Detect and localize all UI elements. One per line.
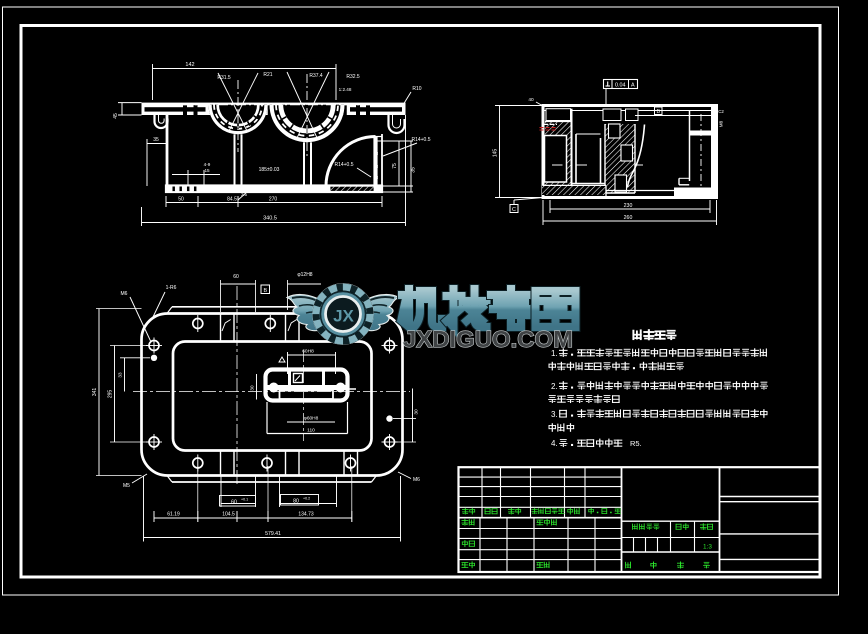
svg-text:JXDIGUO.COM: JXDIGUO.COM <box>403 326 573 352</box>
svg-text:50: 50 <box>178 197 184 203</box>
svg-text:341: 341 <box>92 388 98 397</box>
svg-text:33: 33 <box>118 372 123 378</box>
svg-text:M6: M6 <box>121 291 128 297</box>
svg-text:60: 60 <box>233 274 239 280</box>
svg-text:45: 45 <box>113 113 119 119</box>
svg-text:0.04: 0.04 <box>615 83 626 89</box>
svg-text:B: B <box>263 288 267 294</box>
svg-text:35: 35 <box>411 167 417 173</box>
svg-text:185±0.03: 185±0.03 <box>259 167 280 173</box>
svg-text:M8: M8 <box>719 120 724 127</box>
svg-text:R32.5: R32.5 <box>346 74 360 80</box>
svg-text:110: 110 <box>307 428 315 434</box>
svg-text:4.: 4. <box>551 439 558 448</box>
svg-text:260: 260 <box>624 215 633 221</box>
svg-text:JX: JX <box>333 307 354 326</box>
svg-text:104.5: 104.5 <box>222 512 235 518</box>
svg-text:579.41: 579.41 <box>265 531 281 537</box>
svg-text:295: 295 <box>108 390 114 399</box>
svg-text:270: 270 <box>269 197 278 203</box>
svg-text:+0.2: +0.2 <box>303 497 310 501</box>
svg-text:84.5: 84.5 <box>227 197 237 203</box>
svg-text:R14+0.5: R14+0.5 <box>411 137 430 143</box>
svg-text:60: 60 <box>231 500 237 506</box>
svg-text:R10: R10 <box>412 86 421 92</box>
svg-text:75: 75 <box>392 163 398 169</box>
svg-text:1:2.48: 1:2.48 <box>339 87 352 92</box>
svg-text:M5: M5 <box>123 483 130 489</box>
svg-text:142: 142 <box>185 62 194 68</box>
svg-text:15: 15 <box>204 168 210 173</box>
svg-text:1:3: 1:3 <box>703 544 712 551</box>
svg-text:C: C <box>512 207 516 213</box>
svg-text:145: 145 <box>493 149 499 158</box>
svg-text:340.5: 340.5 <box>263 216 277 222</box>
svg-text:134.73: 134.73 <box>298 512 314 518</box>
svg-text:1.: 1. <box>551 349 558 358</box>
svg-text:30: 30 <box>250 385 255 391</box>
svg-text:40: 40 <box>528 97 534 103</box>
svg-text:61.19: 61.19 <box>167 512 180 518</box>
svg-text:80: 80 <box>293 499 299 505</box>
svg-text:A: A <box>631 83 635 89</box>
svg-text:M6: M6 <box>413 477 420 483</box>
svg-text:R5.: R5. <box>630 439 642 448</box>
svg-text:φ12H8: φ12H8 <box>297 272 312 278</box>
svg-text:C2: C2 <box>718 109 724 114</box>
svg-text:3.: 3. <box>551 410 558 419</box>
svg-text:35: 35 <box>153 137 159 143</box>
svg-text:R14+0.5: R14+0.5 <box>334 162 353 168</box>
svg-text:R37.4: R37.4 <box>309 73 323 79</box>
svg-text:60H8: 60H8 <box>302 349 314 355</box>
svg-text:1-R6: 1-R6 <box>166 285 177 291</box>
svg-text:B: B <box>656 109 660 115</box>
svg-text:R31.5: R31.5 <box>217 75 231 81</box>
svg-text:30: 30 <box>414 409 420 415</box>
svg-text:+0.1: +0.1 <box>241 498 248 502</box>
svg-text:R21: R21 <box>263 72 272 78</box>
svg-text:2.: 2. <box>551 382 558 391</box>
svg-text:4-9: 4-9 <box>204 162 211 167</box>
svg-text:230: 230 <box>624 203 633 209</box>
svg-text:φ60H8: φ60H8 <box>304 416 319 422</box>
